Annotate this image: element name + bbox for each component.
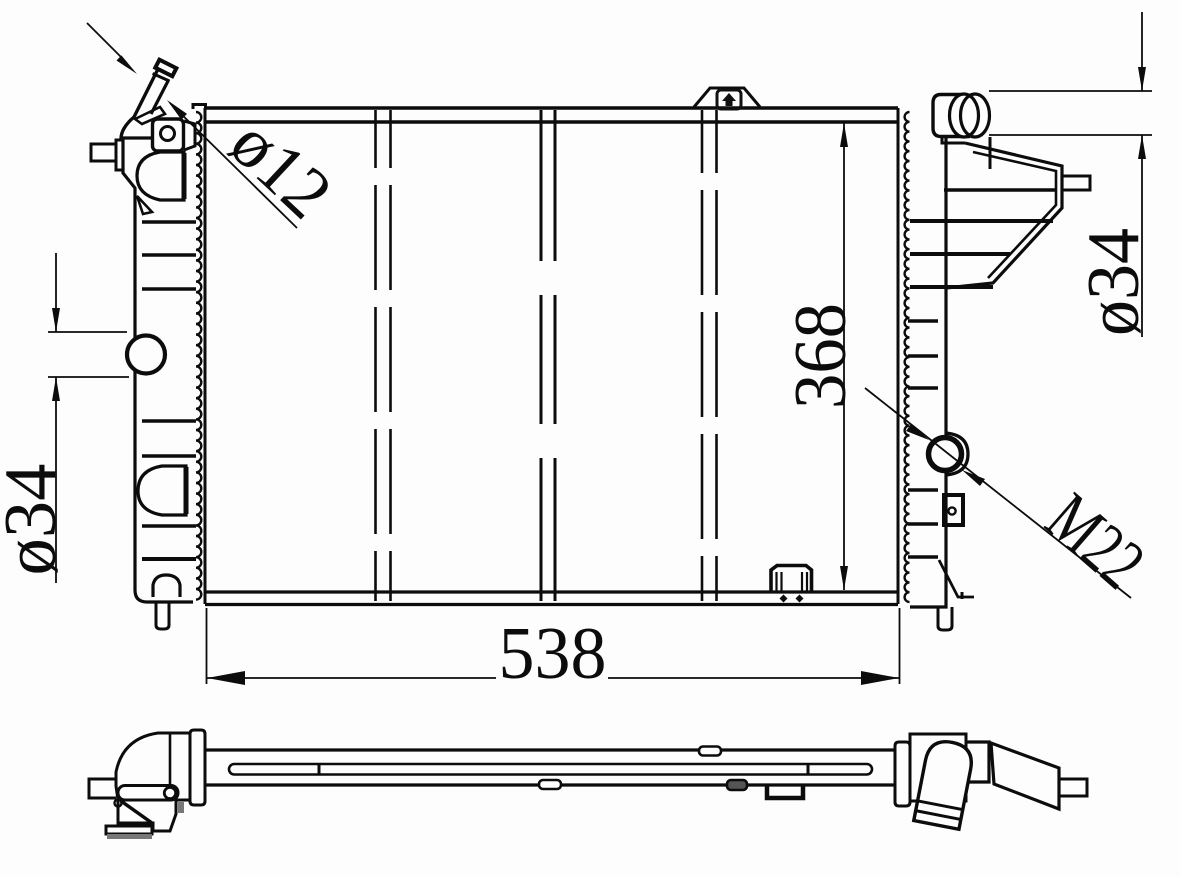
svg-text:538: 538 bbox=[499, 613, 607, 695]
svg-text:ø34: ø34 bbox=[1073, 228, 1155, 336]
svg-text:368: 368 bbox=[780, 303, 862, 409]
svg-text:ø34: ø34 bbox=[0, 464, 72, 576]
